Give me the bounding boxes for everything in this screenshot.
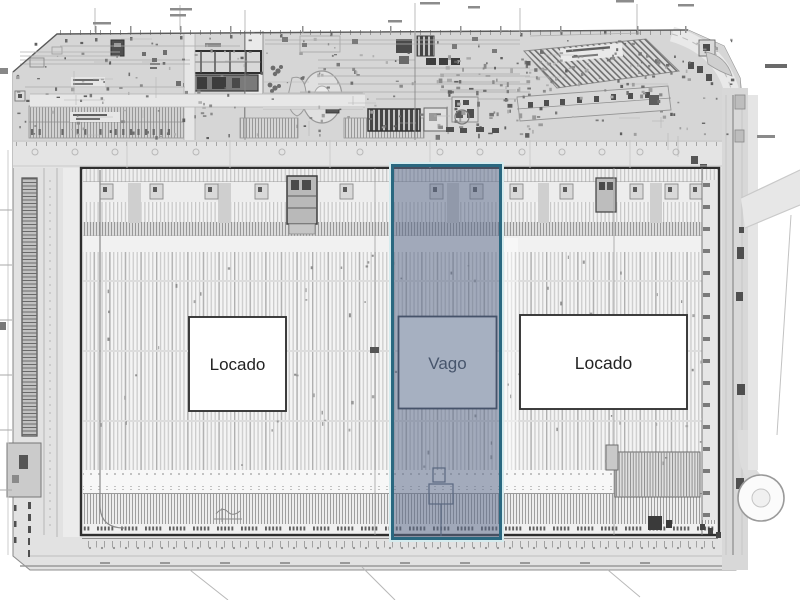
svg-text:Vago: Vago — [428, 354, 466, 373]
svg-text:Locado: Locado — [210, 355, 266, 374]
svg-text:Locado: Locado — [575, 353, 632, 373]
